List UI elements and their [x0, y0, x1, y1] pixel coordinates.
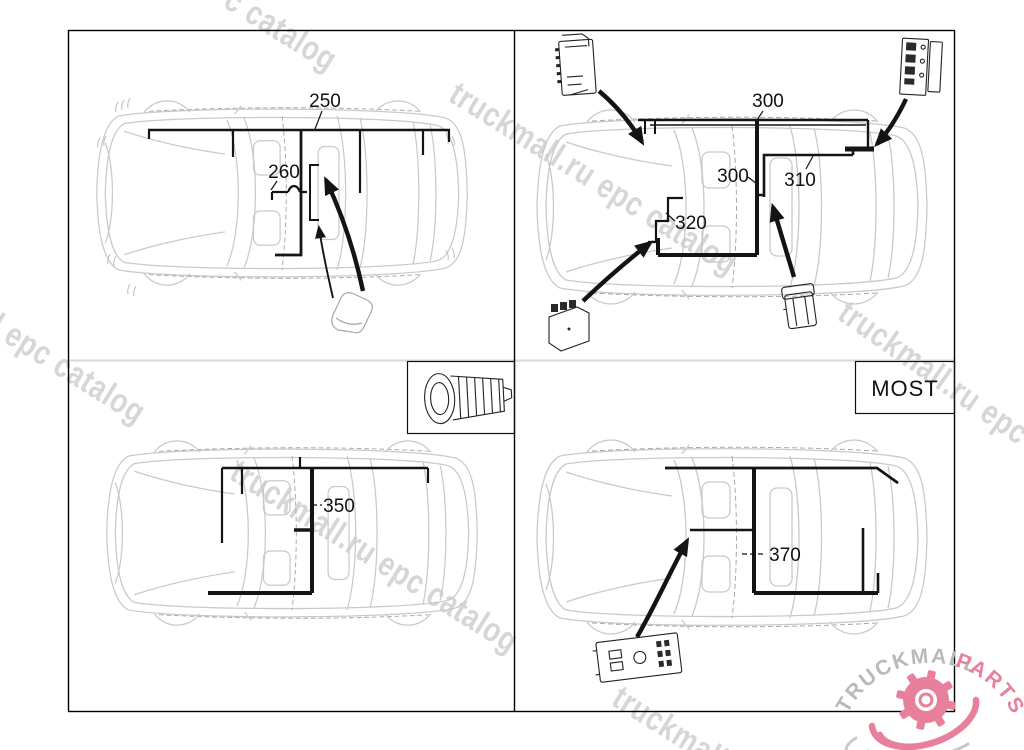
callout-260[interactable]: 260 — [268, 162, 300, 183]
pointer-arrow — [583, 243, 650, 301]
catalog-diagram-page: c catalog truckmall.ru epc catalog truck… — [0, 0, 1024, 750]
quadrant-bottom-right: MOST 370 — [592, 362, 955, 683]
part-inset-box — [408, 362, 515, 434]
callout-310[interactable]: 310 — [784, 170, 816, 191]
switch-icon — [780, 283, 819, 329]
callout-350[interactable]: 350 — [323, 496, 355, 517]
quadrant-top-left: 250 260 — [148, 91, 450, 333]
callout-320[interactable]: 320 — [675, 213, 707, 234]
callout-250[interactable]: 250 — [309, 91, 341, 112]
watermark-text: truckmall.ru epc catalog — [832, 293, 1024, 515]
diagram-canvas: c catalog truckmall.ru epc catalog truck… — [0, 0, 1024, 750]
callout-300-mid[interactable]: 300 — [717, 166, 749, 187]
watermark-text: l epc catalog — [0, 306, 153, 432]
connector-module-icon — [549, 300, 589, 351]
pointer-arrow — [326, 180, 363, 291]
pointer-arrow — [637, 541, 687, 637]
callout-300-top[interactable]: 300 — [752, 91, 784, 112]
seat-icon — [332, 293, 373, 333]
gear-icon — [890, 664, 961, 735]
watermark-text: c catalog — [218, 0, 345, 79]
watermark-text: truckmall.ru epc catalog — [443, 74, 745, 283]
control-unit-icon — [554, 33, 596, 96]
leader-250 — [315, 111, 322, 129]
truckmall-parts-logo: TRUCKMALL PARTS — [832, 644, 1024, 750]
logo-suffix-text: PARTS — [953, 649, 1024, 719]
pointer-arrow — [877, 99, 906, 144]
transmission-icon — [423, 370, 512, 424]
pointer-arrow — [319, 228, 333, 298]
head-unit-icon — [592, 633, 682, 683]
leader-310 — [806, 156, 813, 169]
hatch-marks — [98, 98, 455, 296]
most-label: MOST — [871, 376, 939, 401]
callout-370[interactable]: 370 — [769, 545, 801, 566]
amplifier-module-icon — [900, 38, 943, 96]
pointer-arrow — [599, 91, 642, 142]
pointer-arrow — [773, 207, 794, 277]
